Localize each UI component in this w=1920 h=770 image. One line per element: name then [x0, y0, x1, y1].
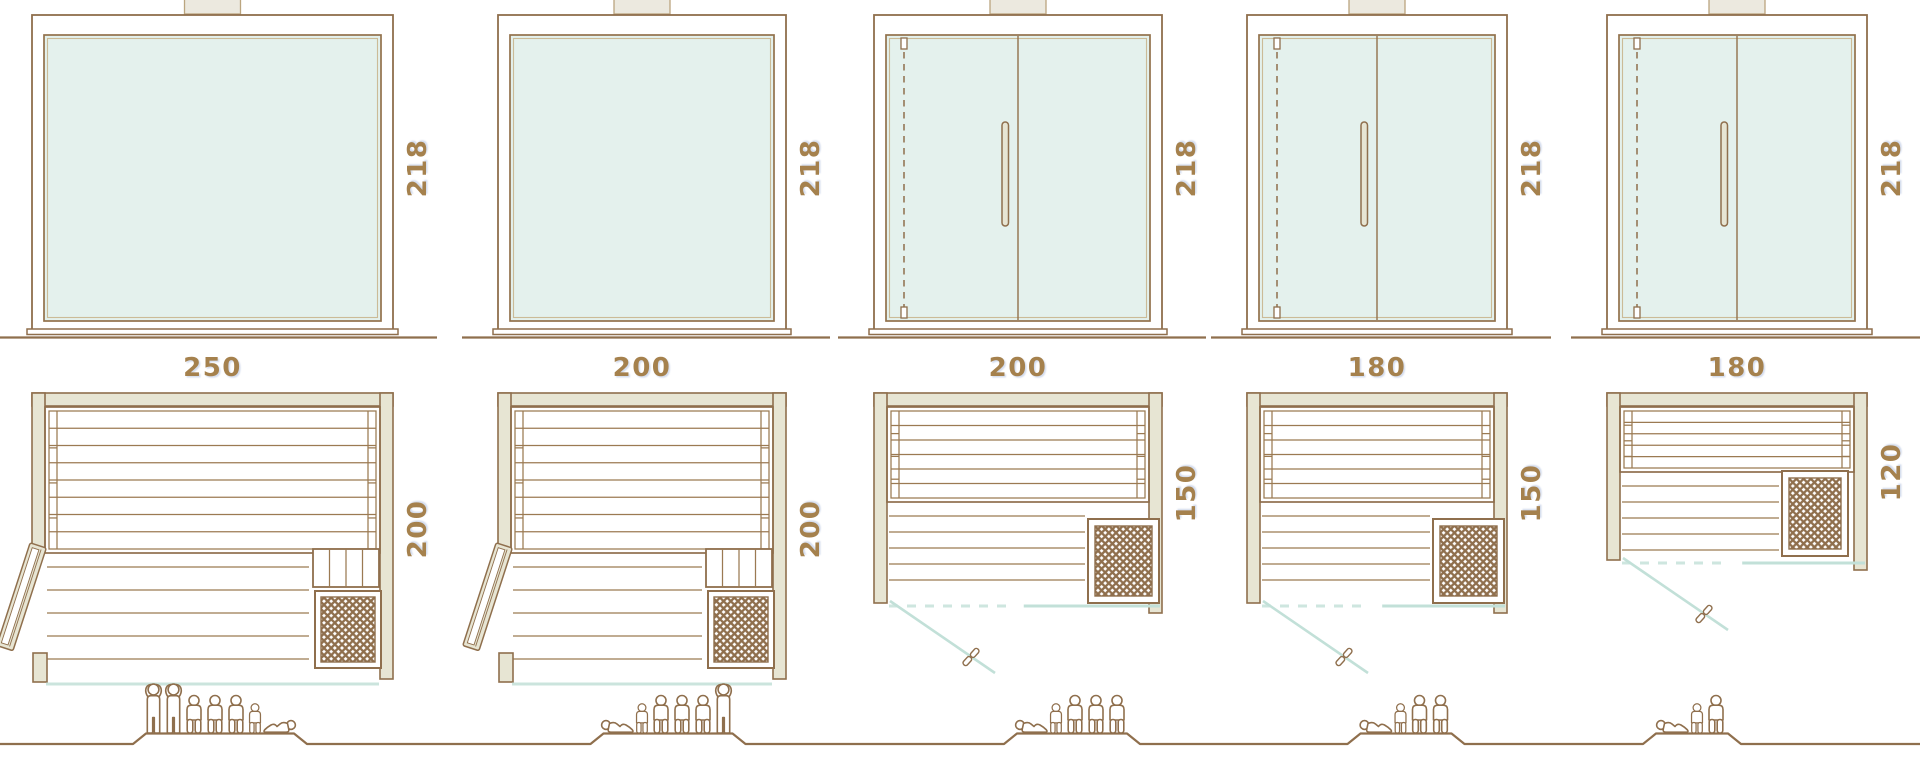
depth-dimension-label: 200	[403, 500, 433, 559]
floor-plan	[1247, 393, 1507, 673]
capacity-figures	[1360, 696, 1447, 734]
upper-bench	[1260, 407, 1494, 502]
height-dimension-label: 218	[1172, 139, 1202, 198]
upper-bench	[511, 407, 773, 553]
sauna-heater	[1782, 471, 1848, 556]
lower-bench	[889, 516, 1085, 580]
door-handle-plan	[962, 647, 980, 666]
floor-plan	[463, 393, 786, 684]
lower-bench	[513, 567, 702, 659]
upper-bench	[45, 407, 380, 553]
diagram-canvas	[0, 0, 1920, 770]
bench-slats	[706, 549, 772, 587]
upper-bench	[1620, 407, 1854, 472]
front-elevation	[1242, 0, 1512, 335]
person-seated-icon	[1709, 696, 1723, 734]
person-child-icon	[1051, 704, 1062, 733]
glass-front-door	[1622, 558, 1865, 630]
front-elevation	[27, 0, 398, 335]
person-seated-icon	[654, 696, 668, 734]
lower-bench	[47, 567, 309, 659]
person-seated-icon	[1110, 696, 1124, 734]
capacity-figures	[602, 684, 732, 733]
lower-bench	[1262, 516, 1430, 580]
sauna-heater	[315, 591, 381, 668]
height-dimension-label: 218	[1517, 139, 1547, 198]
person-seated-icon	[675, 696, 689, 734]
floor-plan	[0, 393, 393, 684]
width-dimension-label: 180	[1348, 353, 1407, 383]
glass-front-door	[889, 601, 1160, 673]
person-seated-icon	[229, 696, 243, 734]
person-seated-icon	[1068, 696, 1082, 734]
depth-dimension-label: 120	[1877, 442, 1907, 501]
lower-bench	[1622, 486, 1779, 550]
person-child-icon	[250, 704, 261, 733]
width-dimension-label: 200	[989, 353, 1048, 383]
sauna-heater	[708, 591, 774, 668]
front-elevation	[1602, 0, 1872, 335]
person-standing-icon	[146, 684, 162, 733]
height-dimension-label: 218	[403, 139, 433, 198]
sauna-size-diagram: 250 200 200 180 180 218 218 218 218 218 …	[0, 0, 1920, 770]
person-child-icon	[1395, 704, 1406, 733]
capacity-figures	[146, 684, 296, 733]
person-reclining-left-icon	[1360, 721, 1391, 733]
glass-front-door	[1262, 601, 1505, 673]
open-door-leaf	[463, 543, 513, 651]
floor-plan	[874, 393, 1162, 673]
person-reclining-left-icon	[1657, 721, 1688, 733]
door-handle-plan	[1695, 604, 1713, 623]
height-dimension-label: 218	[796, 139, 826, 198]
person-seated-icon	[1413, 696, 1427, 734]
person-seated-icon	[696, 696, 710, 734]
person-reclining-right-icon	[264, 721, 295, 733]
width-dimension-label: 200	[613, 353, 672, 383]
person-seated-icon	[1089, 696, 1103, 734]
person-child-icon	[637, 704, 648, 733]
height-dimension-label: 218	[1877, 139, 1907, 198]
front-elevation	[869, 0, 1167, 335]
person-seated-icon	[208, 696, 222, 734]
person-reclining-left-icon	[602, 721, 633, 733]
width-dimension-label: 180	[1708, 353, 1767, 383]
door-handle-plan	[1335, 647, 1353, 666]
person-standing-icon	[166, 684, 182, 733]
floor-plan	[1607, 393, 1867, 630]
front-elevation	[493, 0, 791, 335]
sauna-heater	[1088, 519, 1159, 603]
depth-dimension-label: 150	[1172, 464, 1202, 523]
bench-slats	[313, 549, 379, 587]
capacity-figures	[1016, 696, 1124, 734]
capacity-figures	[1657, 696, 1723, 734]
person-reclining-left-icon	[1016, 721, 1047, 733]
width-dimension-label: 250	[183, 353, 242, 383]
capacity-ground-line	[0, 734, 1920, 745]
depth-dimension-label: 200	[796, 500, 826, 559]
person-seated-icon	[187, 696, 201, 734]
person-seated-icon	[1434, 696, 1448, 734]
depth-dimension-label: 150	[1517, 464, 1547, 523]
open-door-leaf	[0, 543, 46, 651]
person-child-icon	[1692, 704, 1703, 733]
person-standing-icon	[716, 684, 732, 733]
sauna-heater	[1433, 519, 1504, 603]
upper-bench	[887, 407, 1149, 502]
